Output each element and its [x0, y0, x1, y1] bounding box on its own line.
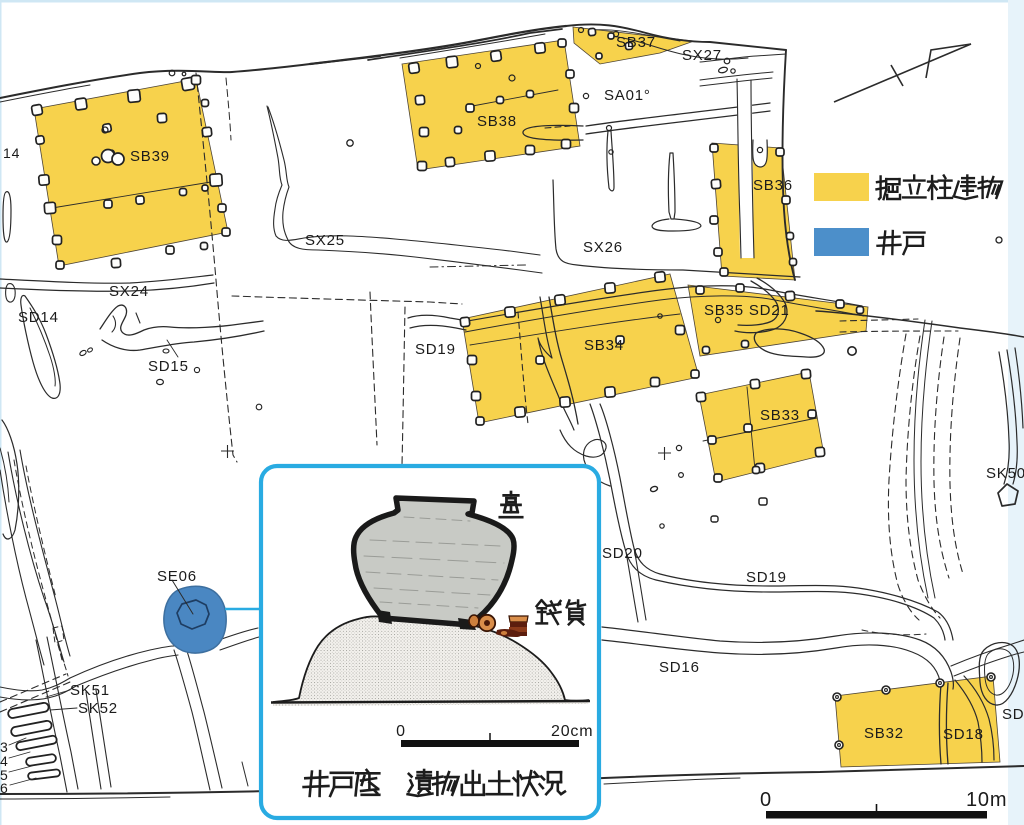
svg-text:SD20: SD20 — [602, 545, 643, 562]
svg-text:6: 6 — [0, 780, 9, 796]
svg-text:SK51: SK51 — [70, 682, 110, 699]
svg-text:SB32: SB32 — [864, 725, 904, 742]
svg-text:SX24: SX24 — [109, 283, 149, 300]
svg-text:SK52: SK52 — [78, 700, 118, 717]
svg-text:SD18: SD18 — [943, 726, 984, 743]
svg-text:SD19: SD19 — [415, 341, 456, 358]
svg-text:SK50: SK50 — [986, 465, 1024, 482]
svg-text:SX25: SX25 — [305, 232, 345, 249]
svg-text:SD16: SD16 — [659, 659, 700, 676]
svg-text:14: 14 — [3, 145, 20, 161]
svg-text:SD: SD — [1002, 706, 1024, 723]
svg-text:SB35 SD21: SB35 SD21 — [704, 302, 790, 319]
svg-text:SA01°: SA01° — [604, 87, 651, 104]
svg-text:SX26: SX26 — [583, 239, 623, 256]
svg-text:SX27: SX27 — [682, 47, 722, 64]
svg-text:SB36: SB36 — [753, 177, 793, 194]
svg-text:10m: 10m — [966, 789, 1007, 811]
svg-text:SD15: SD15 — [148, 358, 189, 375]
svg-text:SB39: SB39 — [130, 148, 170, 165]
svg-text:SB34: SB34 — [584, 337, 624, 354]
svg-text:20cm: 20cm — [551, 723, 593, 740]
svg-text:SD19: SD19 — [746, 569, 787, 586]
svg-text:SD14: SD14 — [18, 309, 59, 326]
svg-text:0: 0 — [396, 723, 406, 740]
svg-text:SB37: SB37 — [616, 34, 656, 51]
svg-text:SB38: SB38 — [477, 113, 517, 130]
svg-text:0: 0 — [760, 789, 772, 811]
svg-text:SE06: SE06 — [157, 568, 197, 585]
svg-text:SB33: SB33 — [760, 407, 800, 424]
